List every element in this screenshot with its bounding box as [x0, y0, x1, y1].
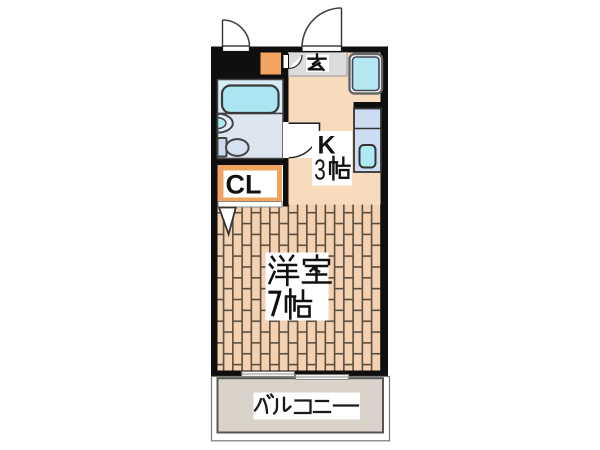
- svg-text:CL: CL: [226, 170, 262, 200]
- svg-text:3: 3: [314, 155, 326, 187]
